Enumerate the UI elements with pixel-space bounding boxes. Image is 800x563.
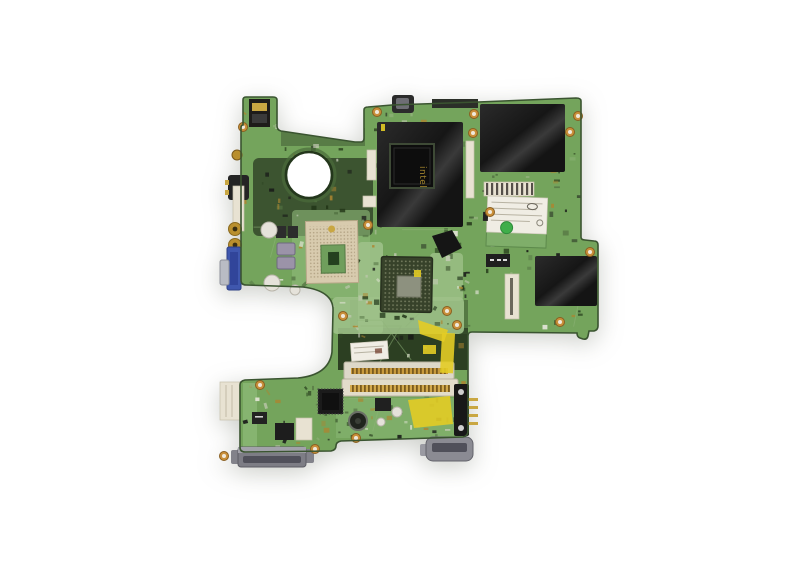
odd-connector	[420, 437, 473, 461]
vertical-header-1	[367, 150, 376, 180]
bluetooth-chip	[486, 254, 510, 267]
gpu-die	[397, 276, 421, 297]
smd-box-mid	[363, 196, 376, 207]
mini-pcie-slot	[505, 274, 519, 319]
eeprom-chip	[275, 423, 294, 440]
photo-canvas: intel	[0, 0, 800, 563]
sodimm-slot-1	[344, 362, 454, 379]
sodimm-slot-2	[342, 379, 458, 396]
gpu-chip	[381, 257, 433, 313]
green-qc-sticker	[500, 221, 512, 233]
cpu-socket	[305, 221, 358, 284]
motherboard-photo: intel	[0, 0, 800, 563]
hdd-connector	[231, 447, 314, 467]
motherboard: intel	[158, 95, 598, 548]
vertical-header-2	[466, 141, 474, 198]
memory-label-yellow	[423, 345, 436, 354]
pcb-hole	[283, 149, 335, 201]
daughter-card-module	[482, 196, 548, 248]
northbridge-assembly: intel	[377, 122, 463, 227]
emi-shield-right	[535, 256, 597, 306]
battery-connector-top	[484, 182, 534, 196]
flash-chip	[375, 398, 391, 411]
kapton-tape-large	[408, 396, 453, 428]
white-component-box	[296, 418, 312, 440]
vga-port	[220, 247, 241, 290]
electrolytic-cap	[349, 412, 367, 430]
kapton-dot	[414, 270, 421, 277]
expresscard-tab-connector	[220, 382, 240, 420]
audio-jack-1	[229, 223, 242, 236]
sodimm-sticker	[350, 341, 388, 362]
bios-chip	[252, 412, 267, 424]
emi-shield-top-right	[480, 104, 565, 172]
smd-cap-white-2	[377, 418, 385, 426]
northbridge-logo: intel	[417, 166, 427, 188]
battery-connector-right	[454, 384, 478, 436]
usb-port	[249, 99, 270, 127]
southbridge-bga-chip	[318, 389, 343, 414]
smd-cap-white-1	[392, 407, 402, 417]
